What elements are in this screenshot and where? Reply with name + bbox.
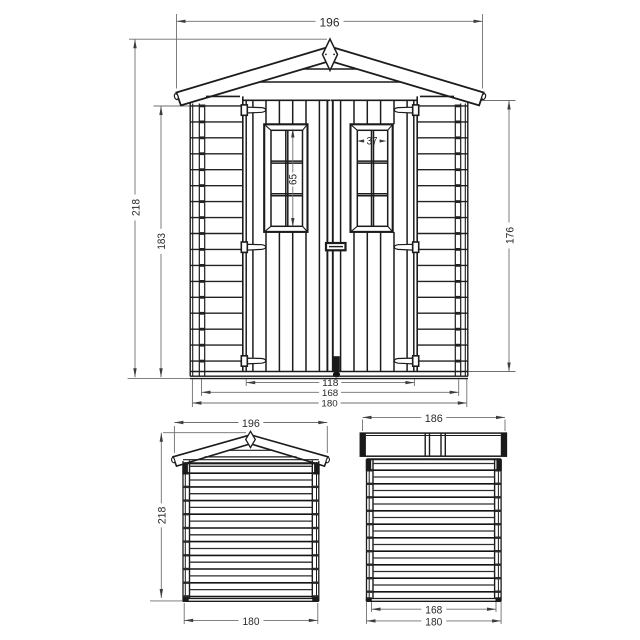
svg-text:168: 168 [425, 605, 442, 617]
svg-text:180: 180 [425, 616, 442, 628]
svg-text:186: 186 [425, 413, 443, 425]
svg-text:118: 118 [322, 378, 338, 388]
svg-text:168: 168 [322, 388, 338, 398]
svg-text:196: 196 [320, 15, 340, 29]
svg-text:183: 183 [156, 233, 168, 250]
svg-text:218: 218 [130, 199, 142, 216]
svg-text:176: 176 [504, 227, 516, 244]
svg-text:65: 65 [288, 174, 300, 185]
svg-text:37: 37 [367, 136, 378, 148]
svg-text:180: 180 [243, 616, 260, 628]
svg-text:218: 218 [157, 507, 169, 525]
svg-text:196: 196 [242, 418, 260, 430]
svg-text:180: 180 [321, 399, 337, 409]
